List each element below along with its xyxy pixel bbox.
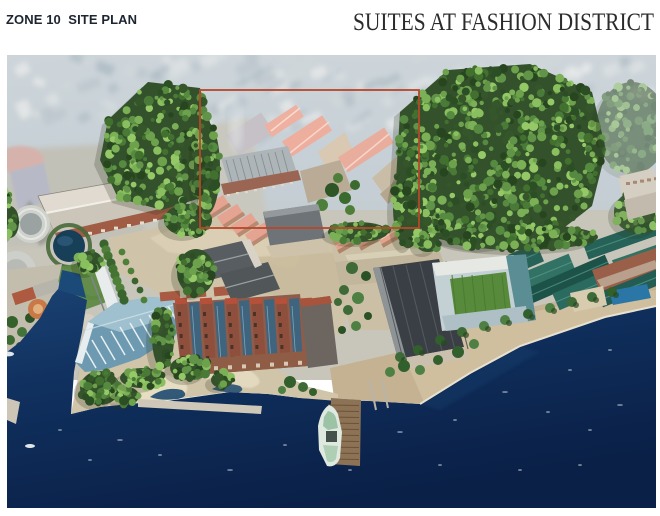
svg-text:SUITES AT FASHION DISTRICT: SUITES AT FASHION DISTRICT [353, 7, 654, 36]
svg-text:ZONE 10 SITE PLAN: ZONE 10 SITE PLAN [6, 12, 137, 27]
